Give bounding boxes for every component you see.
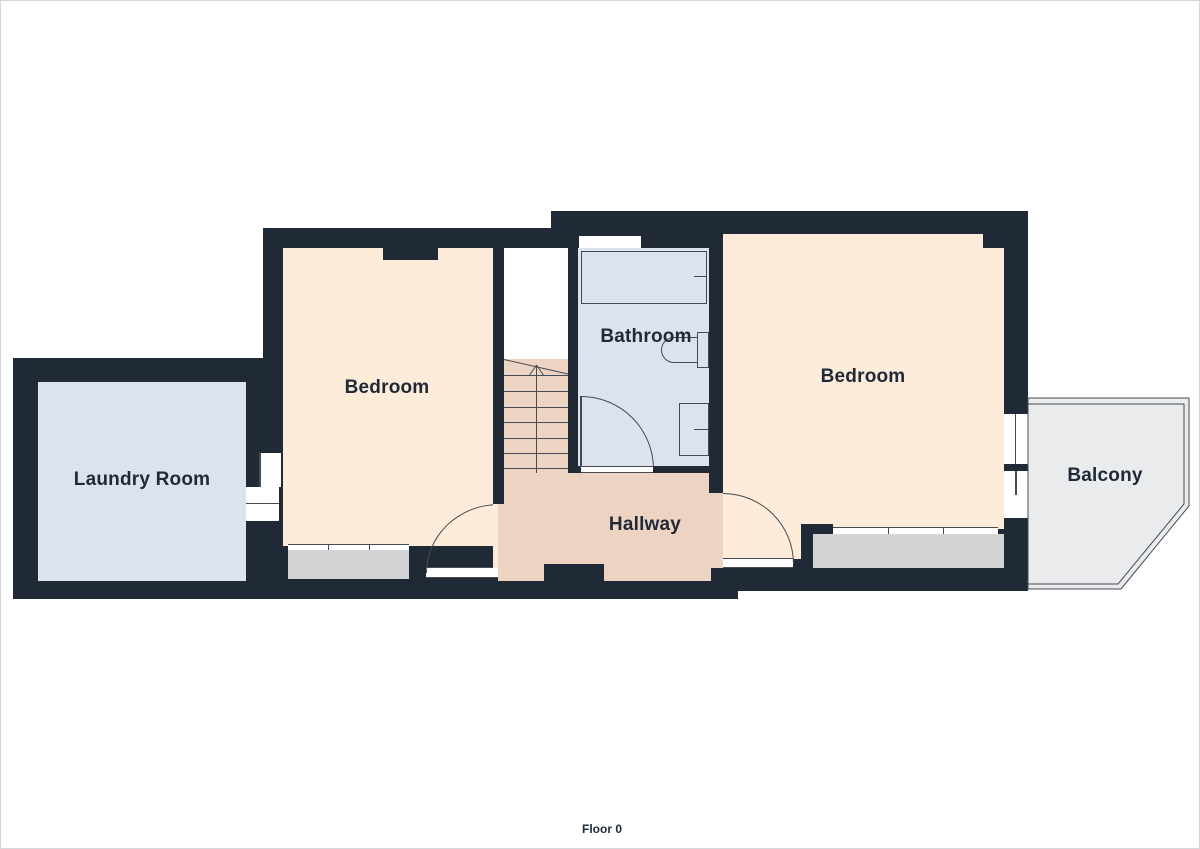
room-label-bedroom-right: Bedroom bbox=[821, 366, 906, 388]
bedroom-left-doorway-patch bbox=[493, 504, 498, 568]
bedroom-right-doorway-patch bbox=[709, 493, 723, 568]
bedroom-left-window-bay bbox=[288, 550, 409, 579]
floor-label: Floor 0 bbox=[582, 822, 622, 836]
sink bbox=[679, 403, 709, 456]
balcony-door-leaf bbox=[1015, 471, 1017, 495]
room-label-bathroom: Bathroom bbox=[600, 326, 691, 348]
hallway-left-wall-stub bbox=[493, 473, 504, 504]
laundry-door-leaf bbox=[259, 453, 281, 487]
bathroom-door-threshold bbox=[581, 466, 653, 473]
window-glass-line bbox=[1015, 414, 1016, 464]
floor-plan-page: Laundry Room Bedroom Bathroom Hallway Be… bbox=[0, 0, 1200, 849]
laundry-door-line bbox=[246, 503, 279, 504]
laundry-door-opening bbox=[246, 487, 279, 521]
balcony-outline bbox=[1028, 398, 1189, 589]
bathtub-faucet-line bbox=[694, 276, 706, 277]
room-label-hallway: Hallway bbox=[609, 514, 681, 536]
balcony bbox=[1027, 396, 1192, 593]
bathroom-wall-niche bbox=[579, 236, 641, 248]
balcony-window bbox=[1004, 414, 1028, 464]
stairwell-upper bbox=[504, 248, 568, 359]
hallway-bottom-pier bbox=[544, 564, 604, 581]
toilet-tank bbox=[697, 332, 709, 368]
room-label-bedroom-left: Bedroom bbox=[345, 377, 430, 399]
hallway-right-wall-stub bbox=[709, 473, 723, 493]
stairs-treads-and-arrow bbox=[504, 359, 568, 474]
bedroom-left-wall-notch bbox=[383, 248, 438, 260]
room-label-laundry: Laundry Room bbox=[74, 469, 210, 491]
bedroom-right-wall-notch bbox=[983, 234, 1004, 248]
sink-line bbox=[694, 429, 708, 430]
bathtub bbox=[581, 251, 707, 304]
bedroom-right-bay-stub bbox=[801, 524, 833, 534]
bedroom-right-window-bay bbox=[813, 534, 1004, 568]
room-label-balcony: Balcony bbox=[1067, 465, 1142, 487]
